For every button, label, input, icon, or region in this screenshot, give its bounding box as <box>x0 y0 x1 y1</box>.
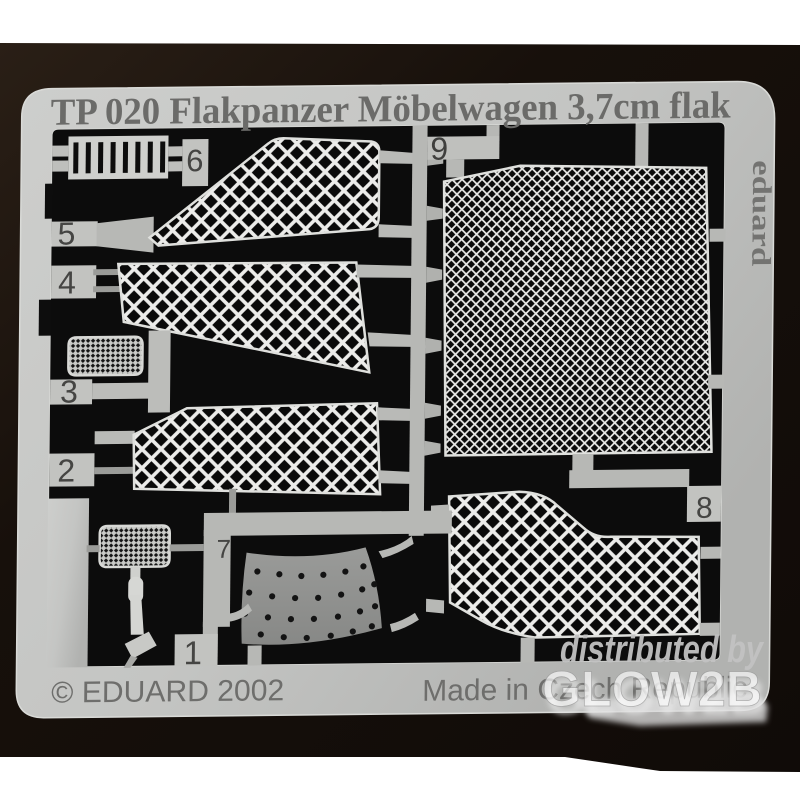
svg-text:2: 2 <box>57 452 75 488</box>
svg-text:© EDUARD 2002: © EDUARD 2002 <box>51 674 284 709</box>
svg-text:7: 7 <box>216 534 231 564</box>
svg-text:GLOW2B: GLOW2B <box>542 661 762 717</box>
svg-text:4: 4 <box>58 264 76 300</box>
svg-text:eduard: eduard <box>746 160 777 266</box>
svg-text:9: 9 <box>430 131 448 167</box>
svg-text:TP 020 Flakpanzer Möbelwagen: TP 020 Flakpanzer Möbelwagen 3,7cm flak <box>51 85 732 134</box>
svg-text:5: 5 <box>57 215 75 251</box>
svg-text:8: 8 <box>696 492 713 525</box>
svg-text:1: 1 <box>183 634 202 671</box>
svg-text:6: 6 <box>186 143 204 178</box>
svg-text:3: 3 <box>60 373 78 409</box>
